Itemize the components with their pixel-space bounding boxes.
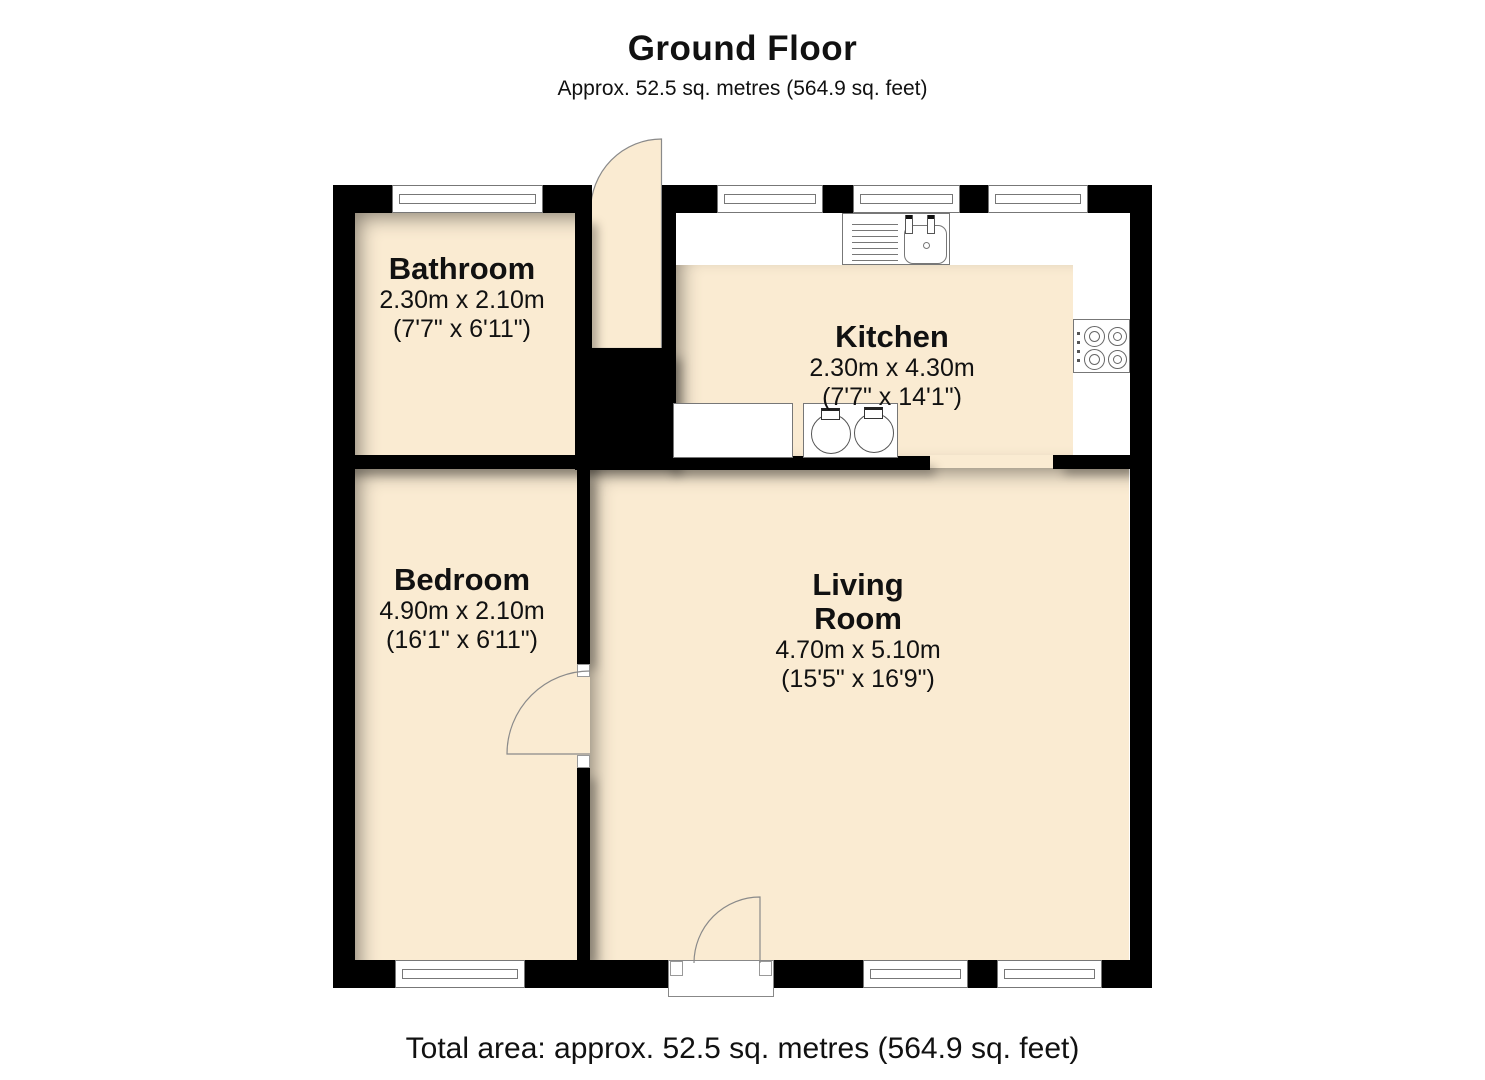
room-label-living-room: Living Room 4.70m x 5.10m (15'5" x 16'9"… <box>726 568 990 694</box>
window-bedroom <box>395 960 525 988</box>
wall-kitchen-living-divider-right <box>1053 455 1130 469</box>
bedroom-door-swing <box>507 671 590 754</box>
window-living-2 <box>997 960 1102 988</box>
room-name: Kitchen <box>760 320 1024 354</box>
bedroom-door-icon <box>498 662 593 760</box>
window-living-1 <box>863 960 968 988</box>
room-name: Living <box>726 568 990 602</box>
wall-kitchen-left <box>662 213 676 353</box>
hob-burner-icon <box>1108 327 1127 346</box>
hob-burner-icon <box>1084 349 1105 370</box>
total-area-text: Total area: approx. 52.5 sq. metres (564… <box>0 1032 1485 1066</box>
living-room-floor <box>590 468 1129 960</box>
front-door-icon <box>678 892 766 970</box>
wall-right <box>1130 185 1152 988</box>
sink-tap-left-icon <box>905 215 913 234</box>
room-dims-metric: 2.30m x 4.30m <box>760 354 1024 383</box>
wall-kitchen-living-divider-left <box>662 456 930 470</box>
window-kitchen-1 <box>717 185 823 213</box>
wall-corridor-block <box>575 348 676 470</box>
wall-bedroom-right-lower <box>577 768 590 960</box>
sink-drain-icon <box>923 242 930 249</box>
sink-tap-right-icon <box>927 215 935 234</box>
window-pane <box>402 969 518 979</box>
hob-burner-icon <box>1084 326 1105 347</box>
room-name: Room <box>726 602 990 636</box>
room-dims-metric: 4.90m x 2.10m <box>330 597 594 626</box>
hob-unit <box>1073 319 1130 373</box>
room-name: Bathroom <box>330 252 594 286</box>
room-dims-imperial: (15'5" x 16'9") <box>726 665 990 694</box>
window-pane <box>860 194 953 204</box>
room-dims-metric: 2.30m x 2.10m <box>330 286 594 315</box>
window-pane <box>399 194 536 204</box>
window-pane <box>1004 969 1095 979</box>
room-label-bedroom: Bedroom 4.90m x 2.10m (16'1" x 6'11") <box>330 563 594 655</box>
room-label-kitchen: Kitchen 2.30m x 4.30m (7'7" x 14'1") <box>760 320 1024 412</box>
front-door-swing <box>694 897 760 963</box>
appliance-ring-icon <box>854 413 894 453</box>
floor-plan: Bathroom 2.30m x 2.10m (7'7" x 6'11") Ki… <box>0 0 1485 1080</box>
window-bathroom <box>392 185 543 213</box>
entrance-door-icon <box>585 133 665 355</box>
room-dims-imperial: (7'7" x 14'1") <box>760 383 1024 412</box>
wall-bathroom-bedroom-divider <box>333 455 592 469</box>
room-dims-imperial: (16'1" x 6'11") <box>330 626 594 655</box>
room-dims-imperial: (7'7" x 6'11") <box>330 315 594 344</box>
window-kitchen-3 <box>988 185 1088 213</box>
window-pane <box>995 194 1081 204</box>
room-dims-metric: 4.70m x 5.10m <box>726 636 990 665</box>
sink-unit <box>842 213 950 265</box>
window-pane <box>724 194 816 204</box>
window-kitchen-2 <box>853 185 960 213</box>
window-pane <box>870 969 961 979</box>
appliance-ring-icon <box>811 414 851 454</box>
room-label-bathroom: Bathroom 2.30m x 2.10m (7'7" x 6'11") <box>330 252 594 344</box>
hob-controls-icon <box>1077 332 1080 363</box>
room-name: Bedroom <box>330 563 594 597</box>
entrance-door-swing <box>591 139 662 349</box>
sink-drainer-icon <box>852 224 898 261</box>
hob-burner-icon <box>1108 350 1127 369</box>
